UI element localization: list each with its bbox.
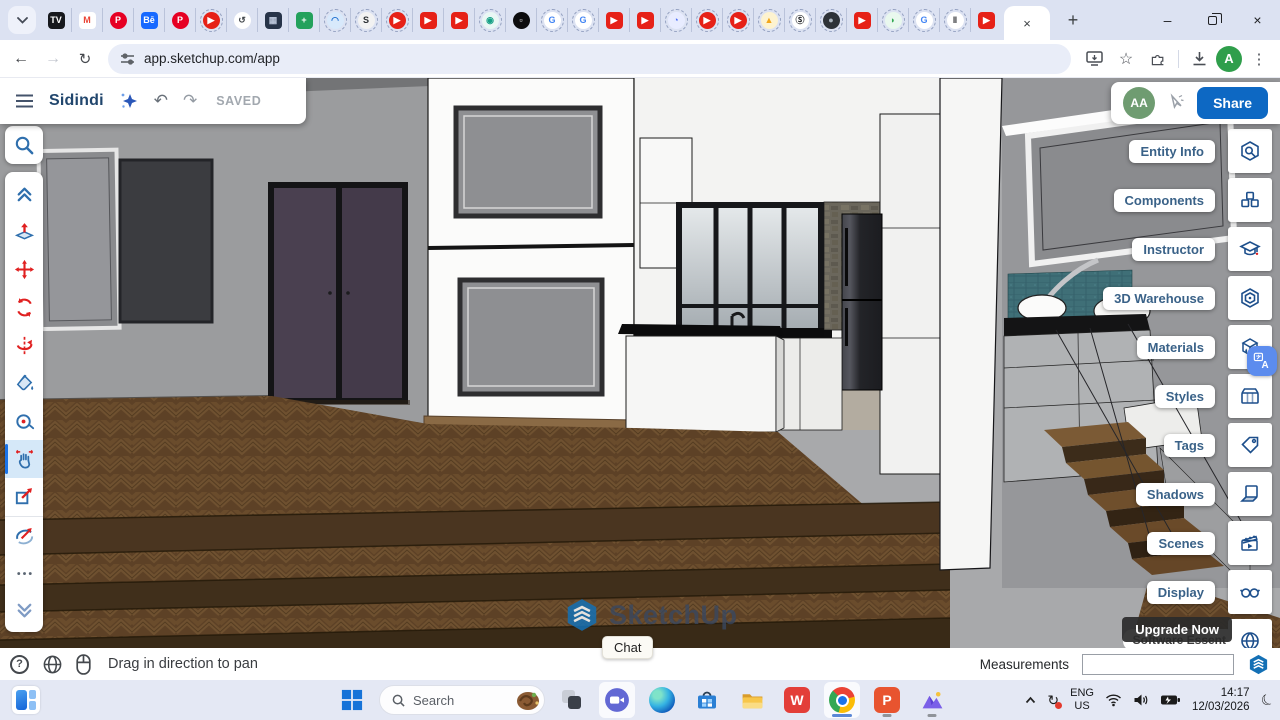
edge-app-button[interactable] bbox=[644, 682, 680, 718]
pinned-tab[interactable]: ◠ bbox=[320, 8, 351, 32]
tab-favicon-icon: Bē bbox=[141, 12, 158, 29]
panel-instructor[interactable] bbox=[1228, 227, 1272, 271]
tab-favicon-icon: ▲ bbox=[761, 12, 778, 29]
user-avatar[interactable]: AA bbox=[1123, 87, 1155, 119]
window-controls: – × bbox=[1145, 0, 1280, 40]
tool-pan[interactable] bbox=[5, 440, 43, 478]
model-kitchen[interactable] bbox=[618, 78, 960, 474]
new-tab-button[interactable]: + bbox=[1060, 7, 1086, 33]
sketchup-badge-icon bbox=[1247, 653, 1270, 676]
tab-favicon-icon: ▦ bbox=[265, 12, 282, 29]
tool-expand[interactable] bbox=[5, 592, 43, 630]
panel-icon bbox=[1238, 384, 1262, 408]
panel-label: 3D Warehouse bbox=[1103, 287, 1215, 310]
wps-app-button[interactable]: W bbox=[779, 682, 815, 718]
tab-favicon-icon: ▶ bbox=[730, 12, 747, 29]
tab-favicon-icon: ◠ bbox=[327, 12, 344, 29]
tool-push-pull[interactable] bbox=[5, 212, 43, 250]
translate-fab[interactable]: A bbox=[1247, 346, 1277, 376]
downloads-button[interactable] bbox=[1184, 44, 1214, 74]
pinned-tab[interactable]: G bbox=[568, 8, 599, 32]
sync-icon[interactable]: ↻ bbox=[1047, 692, 1059, 709]
presentation-app-button[interactable]: P bbox=[869, 682, 905, 718]
pinned-tab[interactable]: P bbox=[165, 8, 196, 32]
reload-button[interactable]: ↻ bbox=[70, 44, 100, 74]
puzzle-icon bbox=[1150, 51, 1166, 67]
taskbar: Search W P bbox=[0, 680, 1280, 720]
panel-3d-warehouse[interactable] bbox=[1228, 276, 1272, 320]
tool-icon bbox=[13, 448, 36, 471]
watermark-text: SketchUp bbox=[609, 600, 738, 631]
extensions-button[interactable] bbox=[1143, 44, 1173, 74]
pinned-tab[interactable]: S bbox=[351, 8, 382, 32]
tool-rotate[interactable] bbox=[5, 288, 43, 326]
pinned-tab[interactable]: ▶ bbox=[847, 8, 878, 32]
tool-icon bbox=[13, 524, 36, 547]
panel-icon bbox=[1238, 580, 1262, 604]
panel-display[interactable] bbox=[1228, 570, 1272, 614]
search-icon bbox=[392, 694, 405, 707]
model-center-wall[interactable] bbox=[424, 78, 634, 430]
pinned-tab[interactable]: ▶ bbox=[692, 8, 723, 32]
chrome-icon bbox=[829, 687, 855, 713]
pinned-tab[interactable]: P bbox=[103, 8, 134, 32]
panel-label: Scenes bbox=[1147, 532, 1215, 555]
url-text: app.sketchup.com/app bbox=[144, 51, 280, 66]
search-placeholder: Search bbox=[413, 693, 454, 708]
tool-icon bbox=[13, 220, 36, 243]
tab-favicon-icon: ▶ bbox=[637, 12, 654, 29]
tool-icon bbox=[13, 182, 36, 205]
pinned-tab[interactable]: ▶ bbox=[382, 8, 413, 32]
close-button[interactable]: × bbox=[1235, 0, 1280, 40]
tool-paint-bucket[interactable] bbox=[5, 364, 43, 402]
panel-row: Scenes bbox=[1103, 521, 1272, 565]
taskbar-center: Search W P bbox=[334, 680, 950, 720]
pinned-tabs: TV M P Bē P ▶ bbox=[41, 0, 1002, 40]
pinned-tab[interactable]: ▶ bbox=[630, 8, 661, 32]
model-column[interactable] bbox=[940, 78, 1002, 570]
left-toolbar bbox=[5, 172, 43, 632]
pinned-tab[interactable]: TV bbox=[41, 8, 72, 32]
tool-icon bbox=[13, 372, 36, 395]
tool-move[interactable] bbox=[5, 250, 43, 288]
upgrade-button[interactable]: Upgrade Now bbox=[1122, 617, 1232, 642]
forward-button[interactable]: → bbox=[38, 44, 68, 74]
toolbar-divider bbox=[1178, 50, 1179, 68]
site-settings-icon[interactable] bbox=[120, 52, 135, 66]
panel-row: 3D Warehouse bbox=[1103, 276, 1272, 320]
help-icon[interactable]: ? bbox=[10, 655, 29, 674]
pinned-tab[interactable]: ▲ bbox=[754, 8, 785, 32]
pinned-tab[interactable]: ◉ bbox=[475, 8, 506, 32]
pinned-tab[interactable]: Bē bbox=[134, 8, 165, 32]
tab-favicon-icon: G bbox=[544, 12, 561, 29]
pinned-tab[interactable]: ▶ bbox=[971, 8, 1002, 32]
pinned-tab[interactable]: G bbox=[537, 8, 568, 32]
profile-avatar[interactable]: A bbox=[1216, 46, 1242, 72]
pinned-tab[interactable]: ▶ bbox=[196, 8, 227, 32]
volume-icon[interactable] bbox=[1133, 693, 1149, 707]
tab-favicon-icon: ▶ bbox=[606, 12, 623, 29]
pinned-tab[interactable]: ‖ bbox=[940, 8, 971, 32]
panel-icon bbox=[1238, 433, 1262, 457]
tool-search[interactable] bbox=[5, 126, 43, 164]
panel-shadows[interactable] bbox=[1228, 472, 1272, 516]
browser-toolbar: ← → ↻ app.sketchup.com/app ☆ A ⋮ bbox=[0, 40, 1280, 78]
panel-icon bbox=[1238, 139, 1262, 163]
store-icon bbox=[695, 688, 719, 712]
pinned-tab[interactable]: ▶ bbox=[444, 8, 475, 32]
tab-favicon-icon: Ⓢ bbox=[792, 12, 809, 29]
panel-row: Tags bbox=[1103, 423, 1272, 467]
tool-icon bbox=[13, 258, 36, 281]
tab-favicon-icon: ‖ bbox=[947, 12, 964, 29]
task-view-button[interactable] bbox=[554, 682, 590, 718]
tool-orbit[interactable] bbox=[5, 516, 43, 554]
tool-icon bbox=[13, 600, 36, 623]
tool-hint: Drag in direction to pan bbox=[108, 656, 258, 672]
panel-row: Shadows bbox=[1103, 472, 1272, 516]
mountain-icon bbox=[920, 688, 945, 713]
presentation-icon: P bbox=[874, 687, 900, 713]
wifi-icon[interactable] bbox=[1105, 693, 1122, 707]
mouse-icon[interactable] bbox=[76, 654, 91, 675]
panel-label: Display bbox=[1147, 581, 1215, 604]
app-header: Sidindi ↶ ↷ SAVED bbox=[0, 78, 306, 124]
redo-button[interactable]: ↷ bbox=[183, 91, 197, 111]
task-view-icon bbox=[560, 688, 584, 712]
pinned-tab[interactable]: ↺ bbox=[227, 8, 258, 32]
tab-favicon-icon: ▶ bbox=[978, 12, 995, 29]
panel-label: Components bbox=[1114, 189, 1215, 212]
minimize-button[interactable]: – bbox=[1145, 0, 1190, 40]
translate-icon: A bbox=[1253, 352, 1271, 370]
panel-icon bbox=[1238, 482, 1262, 506]
tab-favicon-icon: ● bbox=[823, 12, 840, 29]
undo-button[interactable]: ↶ bbox=[154, 91, 168, 111]
pinned-tab[interactable]: ▦ bbox=[258, 8, 289, 32]
chat-app-button[interactable] bbox=[599, 682, 635, 718]
browser-tab-strip: TV M P Bē P ▶ bbox=[0, 0, 1280, 40]
pinned-tab[interactable]: ▶ bbox=[599, 8, 630, 32]
pinned-tab[interactable]: ▶ bbox=[723, 8, 754, 32]
tool-icon bbox=[13, 296, 36, 319]
panel-icon bbox=[1238, 188, 1262, 212]
panel-icon bbox=[1238, 237, 1262, 261]
restore-button[interactable] bbox=[1190, 0, 1235, 40]
measurements-input[interactable] bbox=[1082, 654, 1234, 675]
widgets-icon bbox=[16, 690, 27, 710]
tab-favicon-icon: ▫ bbox=[513, 12, 530, 29]
tab-favicon-icon: P bbox=[172, 12, 189, 29]
tab-favicon-icon: TV bbox=[48, 12, 65, 29]
scene-3d-view[interactable] bbox=[0, 78, 1280, 648]
pinned-tab[interactable]: ▶ bbox=[413, 8, 444, 32]
battery-icon[interactable] bbox=[1160, 694, 1181, 706]
tool-icon bbox=[13, 334, 36, 357]
sketchup-logo-icon bbox=[563, 596, 601, 634]
edge-icon bbox=[649, 687, 675, 713]
taskbar-search[interactable]: Search bbox=[379, 685, 545, 715]
tool-more[interactable] bbox=[5, 554, 43, 592]
tab-favicon-icon: ▶ bbox=[699, 12, 716, 29]
panel-components[interactable] bbox=[1228, 178, 1272, 222]
tab-favicon-icon: ▶ bbox=[389, 12, 406, 29]
tool-zoom-window[interactable] bbox=[5, 478, 43, 516]
right-panel-rail: Entity Info Components Instructor bbox=[1103, 129, 1272, 648]
tool-icon bbox=[13, 562, 36, 585]
panel-icon bbox=[1238, 531, 1262, 555]
install-icon bbox=[1086, 51, 1103, 66]
tab-favicon-icon: M bbox=[79, 12, 96, 29]
pinned-tab[interactable]: ▫ bbox=[506, 8, 537, 32]
tab-favicon-icon: ▶ bbox=[203, 12, 220, 29]
panel-icon bbox=[1238, 629, 1262, 648]
search-icon bbox=[13, 134, 36, 157]
save-status: SAVED bbox=[216, 94, 261, 108]
tab-favicon-icon: ◔ bbox=[668, 12, 685, 29]
tab-favicon-icon: ◉ bbox=[482, 12, 499, 29]
night-mode-icon[interactable]: ☾ bbox=[1257, 689, 1277, 711]
browser-menu-button[interactable]: ⋮ bbox=[1244, 44, 1274, 74]
pinned-tab[interactable]: ● bbox=[816, 8, 847, 32]
active-tab[interactable]: × bbox=[1004, 6, 1050, 40]
panel-icon bbox=[1238, 286, 1262, 310]
tool-tape-measure[interactable] bbox=[5, 402, 43, 440]
search-doodle-icon bbox=[515, 688, 541, 712]
tab-favicon-icon: + bbox=[296, 12, 313, 29]
chevron-down-icon bbox=[17, 17, 28, 24]
collab-cursor-icon bbox=[1166, 93, 1186, 113]
tab-favicon-icon: ▶ bbox=[420, 12, 437, 29]
mountain-app-button[interactable] bbox=[914, 682, 950, 718]
folder-icon bbox=[740, 688, 765, 713]
tray-expand-icon[interactable] bbox=[1025, 696, 1036, 704]
panel-scenes[interactable] bbox=[1228, 521, 1272, 565]
panel-label: Materials bbox=[1137, 336, 1215, 359]
tool-flip[interactable] bbox=[5, 326, 43, 364]
store-app-button[interactable] bbox=[689, 682, 725, 718]
tab-favicon-icon: S bbox=[358, 12, 375, 29]
panel-label: Styles bbox=[1155, 385, 1215, 408]
panel-row: Display bbox=[1103, 570, 1272, 614]
model-title[interactable]: Sidindi bbox=[49, 92, 104, 110]
globe-icon[interactable] bbox=[42, 654, 63, 675]
tab-favicon-icon: ▶ bbox=[451, 12, 468, 29]
tool-collapse[interactable] bbox=[5, 174, 43, 212]
chrome-app-button[interactable] bbox=[824, 682, 860, 718]
tool-icon bbox=[13, 410, 36, 433]
back-button[interactable]: ← bbox=[6, 44, 36, 74]
tab-search-button[interactable] bbox=[8, 6, 36, 34]
panel-tags[interactable] bbox=[1228, 423, 1272, 467]
pinned-tab[interactable]: Ⓢ bbox=[785, 8, 816, 32]
system-tray: ↻ ENG US 14:17 12/03/2026 ☾ bbox=[1025, 680, 1274, 720]
svg-text:A: A bbox=[1262, 360, 1269, 370]
app-header-right: AA Share bbox=[1111, 82, 1280, 124]
video-chat-icon bbox=[604, 687, 630, 713]
panel-label: Shadows bbox=[1136, 483, 1215, 506]
measurements-label: Measurements bbox=[980, 657, 1069, 672]
pinned-tab[interactable]: ◔ bbox=[661, 8, 692, 32]
panel-label: Instructor bbox=[1132, 238, 1215, 261]
panel-row: Components bbox=[1103, 178, 1272, 222]
panel-row: Instructor bbox=[1103, 227, 1272, 271]
tab-favicon-icon: ◗ bbox=[885, 12, 902, 29]
tab-favicon-icon: ▶ bbox=[854, 12, 871, 29]
panel-styles[interactable] bbox=[1228, 374, 1272, 418]
panel-label: Entity Info bbox=[1129, 140, 1215, 163]
menu-icon[interactable] bbox=[15, 94, 34, 108]
panel-row: Entity Info bbox=[1103, 129, 1272, 173]
pinned-tab[interactable]: M bbox=[72, 8, 103, 32]
tab-favicon-icon: P bbox=[110, 12, 127, 29]
panel-label: Tags bbox=[1164, 434, 1215, 457]
tray-clock[interactable]: 14:17 12/03/2026 bbox=[1192, 686, 1250, 715]
modeling-canvas[interactable]: Sidindi ↶ ↷ SAVED AA Share bbox=[0, 78, 1280, 648]
explorer-app-button[interactable] bbox=[734, 682, 770, 718]
tab-close-icon[interactable]: × bbox=[1023, 16, 1031, 31]
windows-icon bbox=[341, 689, 363, 711]
chat-button[interactable]: Chat bbox=[602, 636, 653, 659]
download-icon bbox=[1192, 51, 1207, 66]
panel-row: Styles bbox=[1103, 374, 1272, 418]
restore-icon bbox=[1208, 16, 1217, 25]
bookmark-button[interactable]: ☆ bbox=[1111, 44, 1141, 74]
tab-favicon-icon: ↺ bbox=[234, 12, 251, 29]
pinned-tab[interactable]: ◗ bbox=[878, 8, 909, 32]
tab-favicon-icon: G bbox=[575, 12, 592, 29]
tab-favicon-icon: G bbox=[916, 12, 933, 29]
sketchup-watermark: SketchUp bbox=[563, 596, 738, 634]
language-indicator[interactable]: ENG US bbox=[1070, 687, 1094, 712]
install-app-button[interactable] bbox=[1079, 44, 1109, 74]
ai-sparkle-icon[interactable] bbox=[119, 91, 139, 111]
pinned-tab[interactable]: G bbox=[909, 8, 940, 32]
model-door[interactable] bbox=[268, 182, 410, 405]
tool-icon bbox=[13, 486, 36, 509]
wps-icon: W bbox=[784, 687, 810, 713]
share-button[interactable]: Share bbox=[1197, 87, 1268, 119]
panel-entity-info[interactable] bbox=[1228, 129, 1272, 173]
desktop: TV M P Bē P ▶ bbox=[0, 0, 1280, 720]
pinned-tab[interactable]: + bbox=[289, 8, 320, 32]
widgets-button[interactable] bbox=[12, 686, 40, 714]
start-button[interactable] bbox=[334, 682, 370, 718]
address-bar[interactable]: app.sketchup.com/app bbox=[108, 44, 1071, 74]
